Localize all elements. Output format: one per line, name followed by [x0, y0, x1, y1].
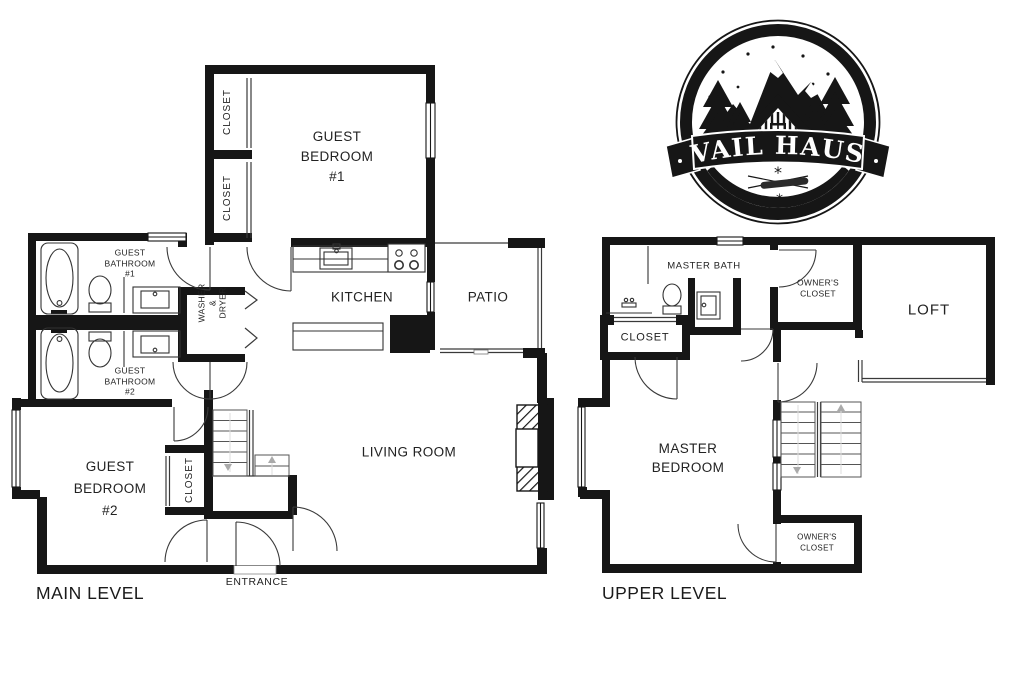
- master-bath-door-icon: [741, 329, 773, 361]
- kitchen-sink-icon: [320, 244, 352, 269]
- stairs-main-icon: [213, 410, 289, 476]
- master-bath-fixtures: [606, 246, 720, 319]
- label-entrance: ENTRANCE: [226, 577, 289, 588]
- living-room-door-icon: [293, 507, 337, 551]
- washer-dryer-doors-icon: [245, 291, 257, 348]
- bathtub-icon: [41, 328, 78, 399]
- label-living-room: LIVING ROOM: [362, 445, 456, 459]
- upper-level-walls: [578, 237, 995, 573]
- label-loft: LOFT: [908, 303, 950, 318]
- bedroom1-door-icon: [247, 247, 291, 291]
- label-patio: PATIO: [468, 290, 509, 304]
- label-kitchen: KITCHEN: [331, 290, 393, 304]
- toilet-icon: [89, 276, 111, 312]
- stairs-up-arrow-icon: [837, 404, 845, 411]
- label-guest-bedroom-1: GUEST BEDROOM #1: [301, 127, 374, 187]
- bathtub-icon: [41, 243, 78, 314]
- label-owners-closet-top: OWNER'S CLOSET: [797, 278, 839, 299]
- sink-vanity-icon: [124, 277, 180, 313]
- logo-snowflake-icon: *: [774, 163, 782, 182]
- vestibule-left-door-icon: [165, 520, 207, 562]
- stairs-down-arrow-icon: [224, 464, 232, 471]
- entrance-door-icon: [236, 522, 280, 566]
- label-washer-dryer: WASHER & DRYER: [196, 284, 228, 323]
- hall-double-doors-icon: [173, 362, 247, 399]
- label-guest-bathroom-2: GUEST BATHROOM #2: [105, 365, 156, 397]
- label-guest-bathroom-1: GUEST BATHROOM #1: [105, 247, 156, 279]
- label-guest-bedroom-2: GUEST BEDROOM #2: [74, 456, 147, 522]
- label-owners-closet-bottom: OWNER'S CLOSET: [797, 533, 837, 554]
- kitchen-island-icon: [293, 323, 383, 350]
- toilet-icon: [89, 332, 111, 367]
- owners-closet-bottom-door-icon: [738, 524, 776, 562]
- fireplace-icon: [516, 405, 547, 491]
- master-bedroom-door-icon: [635, 357, 677, 399]
- stairs-up-arrow-icon: [268, 456, 276, 463]
- stairs-upper-icon: [781, 402, 861, 477]
- stove-icon: [388, 244, 425, 272]
- label-master-bath: MASTER BATH: [667, 261, 740, 271]
- stairs-down-arrow-icon: [793, 467, 801, 474]
- floorplan-page: * * VAIL HAUS CLOSET CLOSET GUEST BEDROO…: [0, 0, 1024, 683]
- sink-vanity-icon: [124, 331, 180, 367]
- vanity-sink-icon: [606, 298, 652, 313]
- label-closet-top: CLOSET: [223, 89, 233, 135]
- label-closet-mid: CLOSET: [223, 175, 233, 221]
- bedroom2-door-icon: [174, 407, 208, 441]
- upper-level-title: UPPER LEVEL: [602, 583, 727, 604]
- shower-stall-icon: [697, 292, 720, 319]
- stair-hall-door-icon: [778, 363, 817, 402]
- toilet-icon: [663, 284, 681, 314]
- label-upper-closet: CLOSET: [621, 333, 670, 344]
- floorplan-drawing: * * VAIL HAUS: [0, 0, 1024, 683]
- vail-haus-logo: * * VAIL HAUS: [666, 21, 890, 224]
- label-closet-stairs: CLOSET: [185, 457, 195, 503]
- label-master-bedroom: MASTER BEDROOM: [652, 439, 725, 477]
- main-level-title: MAIN LEVEL: [36, 583, 144, 604]
- upper-level-plan: [578, 237, 995, 573]
